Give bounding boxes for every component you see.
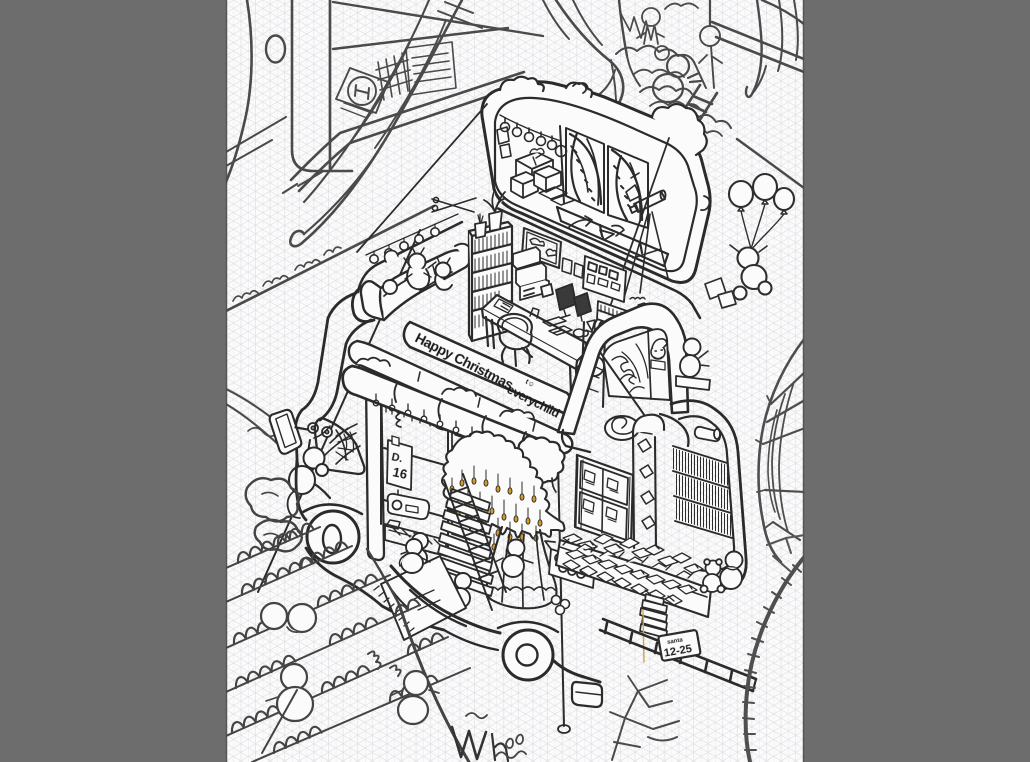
svg-text:16: 16 [391,464,408,482]
